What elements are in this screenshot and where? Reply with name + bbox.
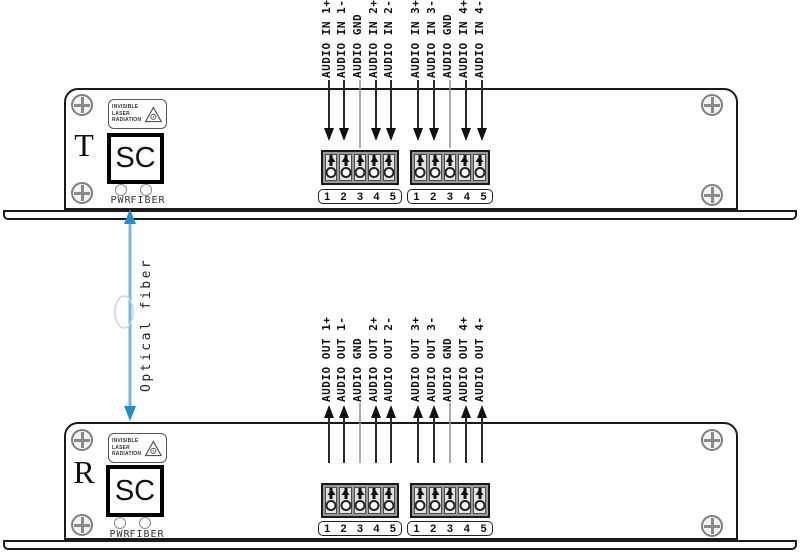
pwr-led — [114, 517, 126, 529]
screw-icon — [701, 515, 723, 537]
screw-icon — [701, 94, 723, 116]
terminal-number: 3 — [352, 191, 368, 203]
terminal-hole — [430, 500, 441, 511]
terminal — [339, 487, 351, 514]
terminal-number: 4 — [368, 523, 384, 535]
laser-warning-text: INVISIBLE LASER RADIATION — [112, 438, 141, 458]
fiber-led-label: FIBER — [126, 195, 170, 206]
terminal-clamp — [463, 155, 466, 166]
terminal — [473, 487, 486, 514]
terminal-number: 3 — [352, 523, 368, 535]
terminal — [414, 154, 427, 181]
terminal-clamp — [478, 488, 481, 499]
fiber-led — [139, 517, 151, 529]
terminal — [368, 487, 380, 514]
terminal-hole — [430, 167, 441, 178]
arrow-up-icon — [324, 405, 334, 418]
audio-out-label: AUDIO OUT 4- — [473, 317, 491, 402]
terminal — [429, 154, 442, 181]
fiber-led-label: FIBER — [125, 529, 169, 540]
terminal-clamp — [448, 488, 451, 499]
terminal-clamp — [463, 488, 466, 499]
terminal-number: 5 — [385, 523, 401, 535]
terminal-block — [410, 483, 490, 518]
terminal-clamp — [419, 488, 422, 499]
fiber-arrow-down-icon — [124, 406, 136, 421]
audio-in-label: AUDIO IN 4- — [473, 0, 491, 78]
terminal — [354, 487, 366, 514]
terminal-numbers: 1 2 3 4 5 — [407, 521, 493, 536]
terminal — [383, 154, 395, 181]
terminal-hole — [383, 167, 394, 178]
terminal-number: 5 — [475, 191, 492, 203]
screw-icon — [701, 429, 723, 451]
laser-warning-label: INVISIBLE LASER RADIATION — [108, 433, 167, 463]
arrow-up-icon — [339, 405, 349, 418]
terminal-hole — [474, 167, 485, 178]
terminal-number: 3 — [442, 191, 459, 203]
terminal-number: 5 — [475, 523, 492, 535]
terminal-hole — [415, 500, 426, 511]
terminal-clamp — [373, 155, 376, 166]
terminal-hole — [369, 500, 380, 511]
terminal-hole — [369, 167, 380, 178]
terminal-clamp — [434, 488, 437, 499]
terminal-number: 4 — [368, 191, 384, 203]
terminal-hole — [340, 500, 351, 511]
terminal-block — [321, 483, 399, 518]
terminal-number: 4 — [458, 523, 475, 535]
transmitter-mounting-flange — [3, 210, 797, 220]
warning-line: INVISIBLE — [112, 104, 141, 111]
terminal-numbers: 1 2 3 4 5 — [318, 521, 402, 536]
terminal-hole — [326, 500, 337, 511]
warning-line: RADIATION — [112, 451, 141, 458]
screw-icon — [71, 429, 93, 451]
terminal-clamp — [387, 488, 390, 499]
terminal-clamp — [344, 155, 347, 166]
terminal-number: 4 — [458, 191, 475, 203]
terminal-clamp — [478, 155, 481, 166]
terminal-hole — [355, 500, 366, 511]
terminal — [429, 487, 442, 514]
terminal-number: 5 — [385, 191, 401, 203]
terminal-hole — [444, 167, 455, 178]
terminal-hole — [474, 500, 485, 511]
terminal-clamp — [448, 155, 451, 166]
warning-line: RADIATION — [112, 117, 141, 124]
arrow-up-icon — [429, 405, 439, 418]
terminal-numbers: 1 2 3 4 5 — [407, 189, 493, 204]
terminal-number: 2 — [335, 191, 351, 203]
terminal-number: 1 — [319, 523, 335, 535]
screw-icon — [701, 184, 723, 206]
arrow-up-icon — [386, 405, 396, 418]
terminal — [444, 487, 457, 514]
terminal-hole — [459, 167, 470, 178]
screw-icon — [71, 182, 93, 204]
warning-line: INVISIBLE — [112, 438, 141, 445]
audio-in-label: AUDIO IN 2- — [382, 0, 400, 78]
terminal-number: 1 — [408, 523, 425, 535]
terminal-hole — [355, 167, 366, 178]
laser-warning-text: INVISIBLE LASER RADIATION — [112, 104, 141, 124]
terminal-clamp — [359, 488, 362, 499]
terminal — [325, 487, 337, 514]
terminal — [354, 154, 366, 181]
terminal-hole — [444, 500, 455, 511]
terminal-clamp — [344, 488, 347, 499]
laser-warning-label: INVISIBLE LASER RADIATION — [108, 99, 167, 129]
terminal-block — [410, 150, 490, 185]
terminal-clamp — [359, 155, 362, 166]
sc-connector: SC — [107, 133, 164, 184]
terminal — [458, 154, 471, 181]
terminal-clamp — [330, 155, 333, 166]
terminal-clamp — [373, 488, 376, 499]
arrow-up-icon — [413, 405, 423, 418]
terminal-clamp — [419, 155, 422, 166]
terminal-hole — [383, 500, 394, 511]
terminal — [339, 154, 351, 181]
terminal — [325, 154, 337, 181]
diagram-canvas: AUDIO IN 1+ AUDIO IN 1- AUDIO GND AUDIO … — [0, 0, 800, 552]
terminal-number: 2 — [425, 191, 442, 203]
terminal-hole — [340, 167, 351, 178]
terminal-block — [321, 150, 399, 185]
audio-out-label: AUDIO OUT 2- — [382, 317, 400, 402]
sc-connector: SC — [106, 465, 164, 517]
laser-warning-triangle-icon — [144, 438, 163, 459]
optical-fiber-label: Optical fiber — [139, 258, 157, 392]
screw-icon — [71, 514, 93, 536]
terminal-clamp — [434, 155, 437, 166]
arrow-up-icon — [461, 405, 471, 418]
arrow-up-icon — [477, 405, 487, 418]
terminal — [458, 487, 471, 514]
terminal-hole — [459, 500, 470, 511]
fiber-loop-icon — [115, 296, 133, 328]
arrow-up-icon — [371, 405, 381, 418]
terminal-numbers: 1 2 3 4 5 — [318, 189, 402, 204]
terminal — [383, 487, 395, 514]
terminal-number: 2 — [425, 523, 442, 535]
receiver-mounting-flange — [3, 540, 797, 550]
terminal-number: 3 — [442, 523, 459, 535]
terminal-number: 2 — [335, 523, 351, 535]
screw-icon — [71, 94, 93, 116]
terminal — [414, 487, 427, 514]
terminal-number: 1 — [408, 191, 425, 203]
laser-warning-triangle-icon — [144, 104, 163, 125]
terminal-clamp — [330, 488, 333, 499]
terminal — [444, 154, 457, 181]
receiver-designator: R — [70, 456, 98, 488]
transmitter-designator: T — [70, 129, 98, 161]
terminal — [473, 154, 486, 181]
terminal — [368, 154, 380, 181]
terminal-hole — [326, 167, 337, 178]
terminal-clamp — [387, 155, 390, 166]
terminal-number: 1 — [319, 191, 335, 203]
terminal-hole — [415, 167, 426, 178]
